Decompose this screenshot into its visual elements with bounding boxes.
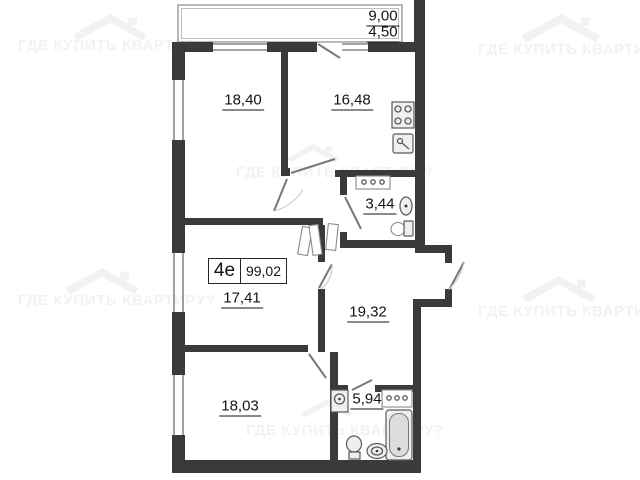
kitchen-area-label: 16,48 — [331, 92, 373, 109]
room-18-03-area-label: 18,03 — [219, 398, 261, 415]
hallway-area-label: 19,32 — [347, 304, 389, 321]
bathroom-3-44-area-label: 3,44 — [363, 196, 396, 213]
apartment-type-code: 4е — [209, 259, 241, 283]
apartment-title-box: 4е 99,02 — [208, 258, 287, 284]
label-layer: 9,00 4,50 18,40 16,48 3,44 17,41 19,32 1… — [0, 0, 640, 480]
room-17-41-area-label: 17,41 — [221, 290, 263, 307]
bathroom-5-94-area-label: 5,94 — [350, 391, 383, 408]
balcony-area-reduced-label: 4,50 — [366, 24, 399, 41]
floor-plan-page: { "watermark": { "text": "ГДЕ КУПИТЬ КВА… — [0, 0, 640, 480]
balcony-area-full-label: 9,00 — [366, 8, 399, 25]
apartment-total-area: 99,02 — [241, 259, 286, 283]
room-18-40-area-label: 18,40 — [222, 92, 264, 109]
